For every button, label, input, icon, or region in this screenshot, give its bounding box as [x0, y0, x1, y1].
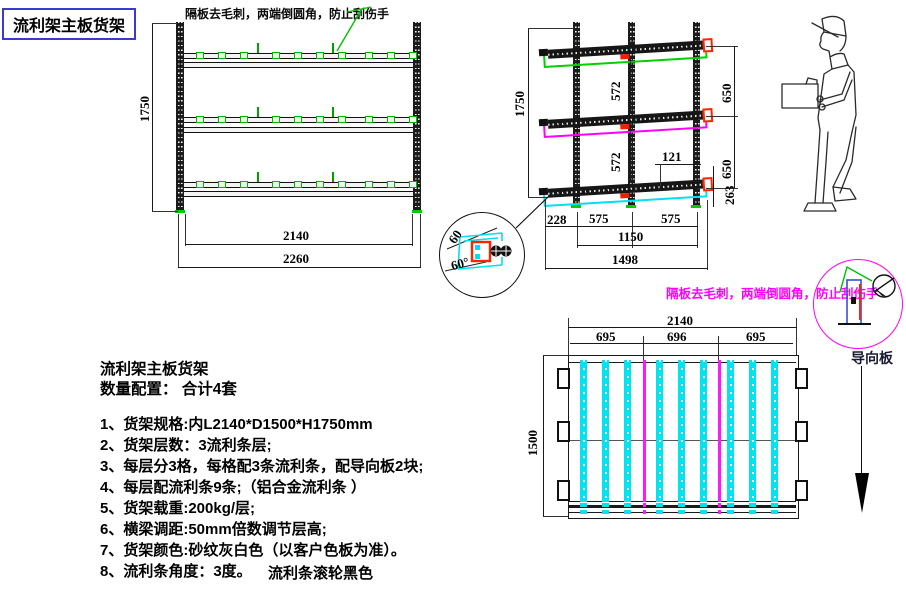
ext-line — [543, 516, 568, 517]
top-view-guide-plate-strip — [718, 360, 721, 502]
bay-divider-tick — [257, 107, 259, 117]
front-dim-height: 1750 — [137, 96, 153, 122]
rail-hook — [539, 119, 548, 127]
worker-figure — [778, 10, 890, 225]
side-dim-pitch-upper: 650 — [719, 84, 735, 104]
flow-rail-clip — [240, 181, 248, 188]
ext-line — [152, 211, 178, 212]
flow-rail-clip — [387, 116, 395, 123]
ext-line — [568, 318, 569, 355]
strip-end-mark — [656, 503, 663, 507]
rail-clip-red — [620, 124, 629, 130]
ext-line — [718, 336, 719, 362]
flow-rail-clip — [409, 181, 417, 188]
detail-circle: 60 60° — [439, 212, 525, 298]
top-view-flow-rail-strip — [580, 360, 587, 502]
worker-shoe-front — [804, 203, 836, 211]
flow-rail-clip — [218, 181, 226, 188]
front-beam — [184, 191, 413, 197]
bay-divider-tick — [257, 172, 259, 182]
guide-plate-label: 导向板 — [851, 348, 893, 368]
bay-divider-tick — [332, 172, 334, 182]
top-view-flow-rail-strip — [602, 360, 609, 502]
roller-color-note: 流利条滚轮黑色 — [268, 562, 373, 583]
page-title: 流利架主板货架 — [13, 12, 125, 36]
guide-end-mark — [718, 503, 721, 507]
strip-end-mark — [580, 503, 587, 507]
flow-rail-clip — [409, 52, 417, 59]
ext-line — [178, 214, 179, 268]
flow-rail-clip — [294, 52, 302, 59]
spec-item-3: 3、每层分3格，每格配3条流利条，配导向板2块; — [100, 455, 423, 476]
top-dim-depth: 1500 — [525, 430, 541, 456]
guide-end-mark — [718, 510, 721, 514]
spec-item-8: 8、流利条角度：3度。 — [100, 560, 252, 581]
side-foot — [571, 205, 581, 208]
guide-plate-arrow-line — [861, 366, 862, 474]
dim-line — [528, 28, 529, 197]
strip-end-mark — [580, 510, 587, 514]
ext-line — [697, 212, 698, 248]
flow-rail-clip — [316, 52, 324, 59]
side-dim-gap-upper: 572 — [608, 82, 624, 102]
ext-line — [545, 200, 546, 270]
side-dim-bay-rear: 575 — [661, 211, 681, 227]
bay-divider-tick — [332, 107, 334, 117]
top-dim-bay-right: 695 — [746, 329, 766, 345]
strip-end-mark — [771, 503, 778, 507]
flow-rail-clip — [338, 52, 346, 59]
top-view-flow-rail-strip — [771, 360, 778, 502]
guide-end-mark — [643, 503, 646, 507]
flow-rail-clip — [272, 116, 280, 123]
flow-rail-clip — [218, 52, 226, 59]
flow-rail-clip — [387, 52, 395, 59]
dim-line — [577, 245, 698, 246]
top-view-flow-rail-strip — [678, 360, 685, 502]
strip-end-mark — [624, 510, 631, 514]
top-view-guide-plate-strip — [643, 360, 646, 502]
side-dim-height: 1750 — [512, 91, 528, 117]
flow-rail-clip — [409, 116, 417, 123]
side-dim-bay-front: 575 — [589, 211, 609, 227]
bay-divider-tick — [332, 43, 334, 53]
front-dim-outer-width: 2260 — [283, 251, 309, 267]
guide-plate-detail-drawing — [813, 259, 905, 351]
spec-item-5: 5、货架载重:200kg/层; — [100, 497, 255, 518]
top-view-flow-rail-strip — [656, 360, 663, 502]
spec-item-1: 1、货架规格:内L2140*D1500*H1750mm — [100, 413, 373, 434]
flow-rail-clip — [196, 116, 204, 123]
flow-rail-clip — [196, 52, 204, 59]
front-post-left — [176, 22, 184, 212]
top-view-bracket — [557, 368, 570, 389]
flow-rail-clip — [294, 181, 302, 188]
side-foot — [626, 205, 636, 208]
strip-end-mark — [678, 503, 685, 507]
dim-line — [734, 46, 735, 116]
flow-rail-clip — [316, 116, 324, 123]
flow-rail-clip — [338, 116, 346, 123]
strip-end-mark — [700, 510, 707, 514]
ext-line — [577, 212, 578, 248]
roller-wheel-icon — [491, 246, 512, 257]
top-view-flow-rail-strip — [749, 360, 756, 502]
side-dim-front-overhang: 228 — [547, 212, 567, 228]
section-symbol-icon — [873, 275, 895, 297]
flow-rail-clip — [365, 52, 373, 59]
spec-item-7: 7、货架颜色:砂纹灰白色（以客户色板为准）。 — [100, 539, 406, 560]
ext-line — [152, 23, 178, 24]
side-dim-pitch-lower: 650 — [719, 160, 735, 180]
dim-line — [543, 355, 544, 517]
side-dim-bottom-height: 263 — [722, 186, 738, 206]
strip-end-mark — [624, 503, 631, 507]
rail-end-red — [702, 177, 713, 192]
top-view-flow-rail-strip — [727, 360, 734, 502]
flow-rail-clip — [196, 181, 204, 188]
flow-rail-clip — [316, 181, 324, 188]
top-view-flow-rail-strip — [624, 360, 631, 502]
side-dim-bay-total: 1150 — [618, 229, 643, 245]
front-foot-right — [412, 210, 422, 213]
spec-quantity: 数量配置： 合计4套 — [100, 377, 237, 399]
top-dim-bay-left: 695 — [596, 329, 616, 345]
flow-rail-clip — [272, 181, 280, 188]
flow-rail-clip — [218, 116, 226, 123]
ext-line — [412, 214, 413, 246]
worker-shoe-rear — [833, 187, 856, 201]
front-beam — [184, 62, 413, 68]
flow-rail-clip — [365, 116, 373, 123]
ext-line — [796, 318, 797, 355]
flow-rail-clip — [240, 52, 248, 59]
dim-line — [630, 124, 631, 183]
dim-line — [713, 166, 714, 207]
top-view-bracket — [795, 368, 808, 389]
flow-rail-clip — [294, 116, 302, 123]
ext-line — [528, 197, 548, 198]
strip-end-mark — [749, 503, 756, 507]
worker-scarf — [830, 53, 848, 69]
spec-heading: 流利架主板货架 — [100, 357, 209, 379]
top-view-bracket — [795, 480, 808, 501]
dim-line — [185, 244, 413, 245]
ext-line — [660, 164, 661, 186]
detail-drawing — [440, 213, 524, 297]
ext-line — [528, 28, 574, 29]
ext-line — [643, 336, 644, 362]
side-dim-gap-lower: 572 — [608, 153, 624, 173]
top-view-flow-rail-strip — [700, 360, 707, 502]
flow-rail-clip — [387, 181, 395, 188]
top-view-bracket — [557, 480, 570, 501]
carried-box — [782, 84, 818, 108]
top-dim-bay-center: 696 — [667, 329, 687, 345]
spec-item-2: 2、货架层数：3流利条层; — [100, 434, 272, 455]
worker-cap — [822, 16, 846, 36]
rail-clip-red — [620, 193, 629, 199]
rail-clip-red — [620, 54, 629, 60]
strip-end-mark — [656, 510, 663, 514]
flow-rail-clip — [240, 116, 248, 123]
strip-end-mark — [749, 510, 756, 514]
strip-end-mark — [727, 503, 734, 507]
flow-rail-clip — [338, 181, 346, 188]
strip-end-mark — [678, 510, 685, 514]
title-box: 流利架主板货架 — [2, 8, 136, 40]
side-dim-offset-top: 121 — [662, 149, 682, 165]
flow-rail-clip — [272, 52, 280, 59]
ext-line — [707, 200, 708, 270]
side-dim-depth-total: 1498 — [612, 252, 638, 268]
strip-end-mark — [602, 510, 609, 514]
drawing-canvas: 流利架主板货架 隔板去毛刺，两端倒圆角，防止刮伤手 1750 2140 2260 — [0, 0, 906, 596]
ext-line — [185, 214, 186, 246]
rail-hook — [539, 188, 548, 196]
guide-end-mark — [643, 510, 646, 514]
front-dim-inner-width: 2140 — [283, 228, 309, 244]
rail-hook — [539, 49, 548, 57]
spec-item-6: 6、横梁调距:50mm倍数调节层高; — [100, 518, 327, 539]
top-dim-width: 2140 — [667, 313, 693, 329]
strip-end-mark — [727, 510, 734, 514]
guide-plate-arrowhead — [855, 473, 869, 513]
ext-line — [543, 355, 568, 356]
dim-line — [178, 267, 421, 268]
flow-rail-clip — [365, 181, 373, 188]
deburr-note-top: 隔板去毛刺，两端倒圆角，防止刮伤手 — [185, 5, 389, 22]
bay-divider-tick — [257, 43, 259, 53]
top-view-bracket — [795, 421, 808, 442]
ext-line — [420, 214, 421, 268]
side-foot — [691, 205, 701, 208]
top-view-bracket — [557, 421, 570, 442]
strip-end-mark — [771, 510, 778, 514]
strip-end-mark — [700, 503, 707, 507]
spec-item-4: 4、每层配流利条9条;（铝合金流利条 ） — [100, 476, 366, 497]
dim-line — [545, 268, 708, 269]
dim-line — [630, 56, 631, 114]
strip-end-mark — [602, 503, 609, 507]
front-beam — [184, 127, 413, 133]
